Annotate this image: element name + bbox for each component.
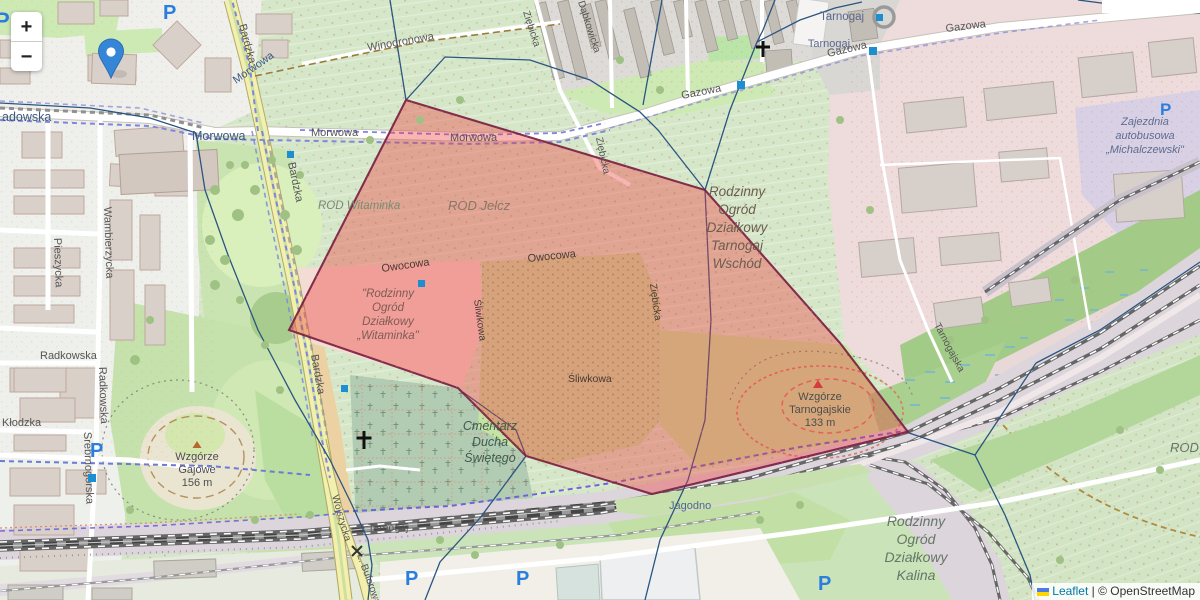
svg-text:Ogród: Ogród xyxy=(718,202,756,217)
svg-text:Radkowska: Radkowska xyxy=(40,350,98,362)
svg-text:Pieszycka: Pieszycka xyxy=(51,238,65,289)
svg-text:Działkowy: Działkowy xyxy=(707,220,769,235)
svg-text:P: P xyxy=(516,568,529,590)
svg-text:Rodzinny: Rodzinny xyxy=(887,513,946,529)
svg-text:Ducha: Ducha xyxy=(472,435,508,449)
svg-text:156 m: 156 m xyxy=(182,477,213,489)
svg-text:autobusowa: autobusowa xyxy=(1115,130,1174,142)
svg-text:P: P xyxy=(1160,100,1171,119)
svg-text:ROD: ROD xyxy=(1170,440,1199,455)
svg-text:ROD Jelcz: ROD Jelcz xyxy=(448,198,511,213)
svg-text:Tarnogaj: Tarnogaj xyxy=(808,38,850,50)
svg-text:P: P xyxy=(405,568,418,590)
svg-text:Tarnogaj: Tarnogaj xyxy=(820,11,864,23)
svg-text:Kalina: Kalina xyxy=(897,567,936,583)
svg-text:Tarnogaj: Tarnogaj xyxy=(711,238,764,253)
svg-text:Działkowy: Działkowy xyxy=(884,549,948,565)
svg-text:Wambierzycka: Wambierzycka xyxy=(101,207,116,280)
svg-text:Rodzinny: Rodzinny xyxy=(709,184,767,199)
svg-text:Świętego: Świętego xyxy=(464,450,515,465)
svg-text:Ogród: Ogród xyxy=(897,531,937,547)
svg-text:P: P xyxy=(0,8,10,33)
svg-text:133 m: 133 m xyxy=(805,417,836,429)
svg-text:Tarnogaj: Tarnogaj xyxy=(368,522,408,534)
svg-text:Morwowa: Morwowa xyxy=(311,127,359,139)
svg-text:P: P xyxy=(163,2,176,24)
svg-text:Radkowska: Radkowska xyxy=(96,367,110,425)
svg-text:Ogród: Ogród xyxy=(372,302,405,314)
svg-text:Wzgórze: Wzgórze xyxy=(175,451,218,463)
svg-text:Morwowa: Morwowa xyxy=(450,132,498,144)
svg-text:adowska: adowska xyxy=(2,110,51,124)
svg-text:Kłodzka: Kłodzka xyxy=(2,417,42,429)
svg-text:Cmentarz: Cmentarz xyxy=(463,419,518,433)
svg-text:"Rodzinny: "Rodzinny xyxy=(362,288,415,300)
svg-text:ROD Witaminka: ROD Witaminka xyxy=(318,200,400,212)
svg-text:Morwowa: Morwowa xyxy=(192,129,246,143)
svg-text:Gajowe: Gajowe xyxy=(178,464,215,476)
svg-text:P: P xyxy=(818,573,831,595)
svg-text:„Michalczewski": „Michalczewski" xyxy=(1105,144,1185,156)
svg-text:Wschód: Wschód xyxy=(713,256,762,271)
svg-text:„Witaminka": „Witaminka" xyxy=(356,330,419,342)
svg-text:Jagodno: Jagodno xyxy=(669,500,711,512)
svg-text:Śliwkowa: Śliwkowa xyxy=(568,372,612,385)
svg-text:Działkowy: Działkowy xyxy=(362,316,415,328)
svg-text:Wzgórze: Wzgórze xyxy=(798,391,841,403)
svg-text:P: P xyxy=(90,440,103,462)
svg-text:Tarnogajskie: Tarnogajskie xyxy=(789,404,851,416)
